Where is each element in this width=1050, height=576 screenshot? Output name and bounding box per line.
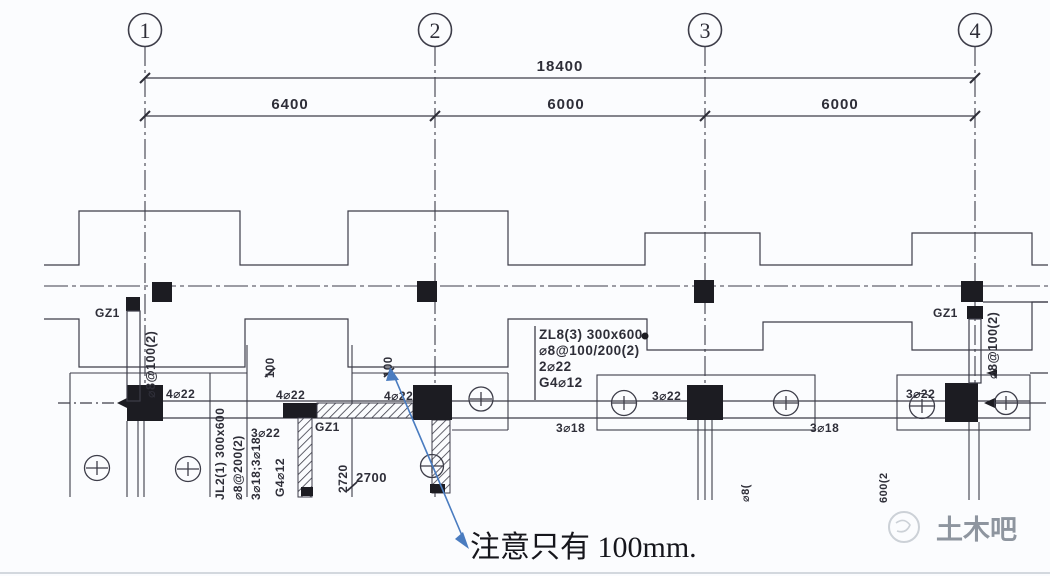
dim-2720: 2720 [336,464,350,493]
column-beam-grid3 [687,385,723,420]
beam-solid-segment [283,403,317,418]
column-beam-grid4 [945,383,978,422]
watermark-logo-icon [889,512,919,542]
note-text: 注意只有 100mm. [470,531,697,564]
plus-circle [995,392,1018,415]
jl2-side-bars: G4⌀12 [273,458,287,497]
gz1-label-grid1: GZ1 [95,306,120,320]
beam-hatched-segment [317,403,413,418]
plus-circle [176,457,201,482]
cad-plan-screenshot: 18400 6400 6000 6000 1 2 3 4 [0,0,1050,576]
plus-circle [774,391,799,416]
structural-plan-drawing: 18400 6400 6000 6000 1 2 3 4 [0,0,1050,576]
rebar-3d18-span2: 3⌀18 [556,421,585,435]
jl2-name-size: JL2(1) 300x600 [213,408,227,500]
stirrup-grid1-vertical: ⌀8@100(2) [144,331,158,398]
zl8-name-size: ZL8(3) 300x600 [539,327,643,342]
rebar-3d22-mid: 3⌀22 [251,426,280,440]
dim-span-34: 6000 [821,96,858,113]
plus-circle [612,391,637,416]
gz1-cap-grid1 [126,297,140,311]
beam-arrow-left [117,398,128,409]
jl2-stirrups: ⌀8@200(2) [231,435,245,500]
grid-bubble-4: 4 [970,18,981,43]
dim-span-23: 6000 [547,96,584,113]
leader-arrowhead-bottom [455,532,469,549]
watermark-text: 土木吧 [936,515,1017,545]
zl8-top-bars: 2⌀22 [539,359,572,374]
gz1-label-grid4: GZ1 [933,306,958,320]
grid-bubble-2: 2 [430,18,441,43]
dim-overall: 18400 [537,58,584,75]
watermark-logo-stroke [896,520,910,531]
beam-lines [58,401,1046,418]
grid-bubble-3: 3 [700,18,711,43]
zl8-callout: ZL8(3) 300x600 ⌀8@100/200(2) 2⌀22 G4⌀12 [539,327,643,390]
rebar-3d22-g3: 3⌀22 [652,389,681,403]
jl2-callout: JL2(1) 300x600 ⌀8@200(2) 3⌀18;3⌀18 G4⌀12 [213,408,287,500]
wall-outline-upper [44,211,1048,265]
dim-2700: 2700 [356,470,387,485]
jl2-bottom-bars: 3⌀18;3⌀18 [249,437,263,500]
plus-circle [469,387,493,411]
dim-100-left: 100 [265,357,277,378]
wall-hatch-strip-right [432,420,450,493]
column-beam-grid2 [413,385,452,420]
hatch-strip-foot-left [301,487,313,496]
rebar-4d22-g2: 4⌀22 [384,389,413,403]
plus-circle [85,456,110,481]
column-upper-grid3 [694,280,714,303]
grid-bubbles: 1 2 3 4 [129,14,992,47]
rebar-4d22-g1: 4⌀22 [166,387,195,401]
column-upper-grid2 [417,281,437,302]
zl8-side-bars: G4⌀12 [539,375,583,390]
wall-hatch-strip-left [298,418,312,497]
rebar-fragment-right: 600(2 [878,472,890,503]
rebar-fragment-left: ⌀8( [740,484,752,502]
rebar-4d22-mid: 4⌀22 [276,388,305,402]
zl8-stirrups: ⌀8@100/200(2) [539,343,640,358]
column-upper-grid4 [961,281,983,302]
watermark: 土木吧 [889,512,1017,545]
grid-bubble-1: 1 [140,18,151,43]
gz1-label-mid: GZ1 [315,420,340,434]
gz1-cap-grid4 [967,306,983,319]
stirrup-grid4-vertical: ⌀8@100(2) [986,312,1000,379]
rebar-3d22-g4: 3⌀22 [906,387,935,401]
dim-span-12: 6400 [271,96,308,113]
column-upper-grid1 [152,282,172,302]
rebar-3d18-span3: 3⌀18 [810,421,839,435]
